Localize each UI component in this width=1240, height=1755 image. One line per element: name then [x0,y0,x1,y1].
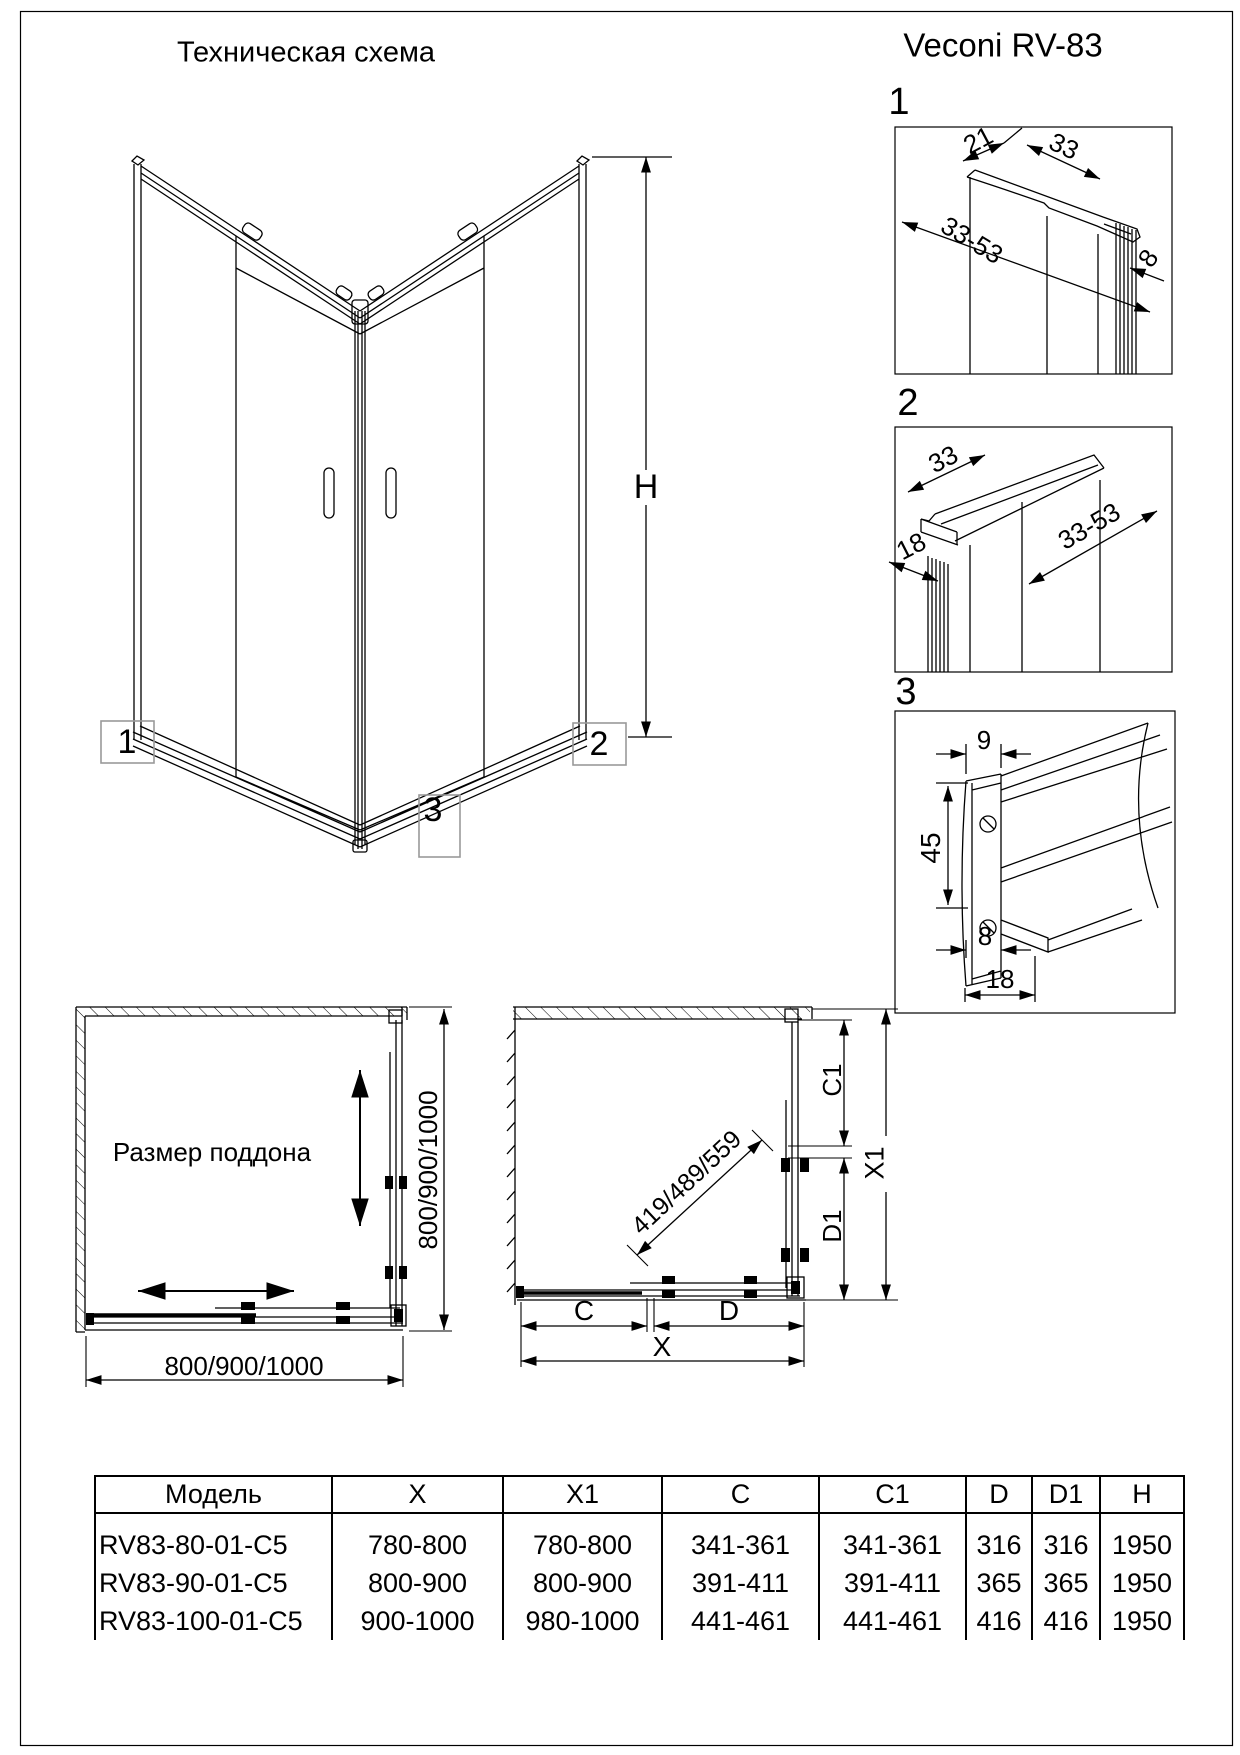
technical-scheme-page: Техническая схема Veconi RV-83 1 2 3 H 1… [0,0,1240,1755]
dim-label-c: C [574,1297,594,1325]
col-header-c: C [662,1476,819,1513]
detail-1-drawing [895,127,1172,374]
cell-c1: 391-411 [819,1564,966,1602]
callout-2-label: 2 [590,727,609,761]
col-header-model: Модель [95,1476,332,1513]
cell-c1: 441-461 [819,1602,966,1640]
detail-3-dim-45: 45 [917,832,945,863]
cell-c: 441-461 [662,1602,819,1640]
left-plan-bottom-dimension: 800/900/1000 [164,1353,323,1379]
cell-d: 416 [966,1602,1032,1640]
cell-x1: 780-800 [503,1513,662,1564]
cell-x: 780-800 [332,1513,503,1564]
dim-label-x: X [653,1333,672,1361]
cell-x: 900-1000 [332,1602,503,1640]
callout-1-label: 1 [118,725,137,759]
col-header-h: H [1100,1476,1184,1513]
cell-x1: 980-1000 [503,1602,662,1640]
detail-2-number: 2 [897,384,918,422]
height-dimension-label: H [634,470,659,504]
detail-3-number: 3 [895,673,916,711]
left-plan-side-dimension: 800/900/1000 [415,1090,441,1249]
col-header-c1: C1 [819,1476,966,1513]
detail-3-dim-18: 18 [986,966,1015,992]
brand-model-title: Veconi RV-83 [903,29,1102,62]
cell-model: RV83-80-01-C5 [95,1513,332,1564]
cell-x1: 800-900 [503,1564,662,1602]
table-row: RV83-100-01-C5 900-1000 980-1000 441-461… [95,1602,1184,1640]
table-row: RV83-80-01-C5 780-800 780-800 341-361 34… [95,1513,1184,1564]
dim-label-d1: D1 [819,1209,845,1242]
cell-h: 1950 [1100,1513,1184,1564]
cell-model: RV83-90-01-C5 [95,1564,332,1602]
cell-model: RV83-100-01-C5 [95,1602,332,1640]
cell-d1: 365 [1032,1564,1100,1602]
main-3d-drawing [101,156,672,857]
table-row: RV83-90-01-C5 800-900 800-900 391-411 39… [95,1564,1184,1602]
detail-1-number: 1 [888,83,909,121]
page-title: Техническая схема [177,39,435,68]
tray-size-label: Размер поддона [113,1139,311,1165]
cell-c: 391-411 [662,1564,819,1602]
col-header-x1: X1 [503,1476,662,1513]
dim-label-c1: C1 [819,1063,845,1096]
left-plan-drawing [76,1007,452,1387]
cell-d1: 316 [1032,1513,1100,1564]
col-header-x: X [332,1476,503,1513]
cell-c: 341-361 [662,1513,819,1564]
col-header-d: D [966,1476,1032,1513]
detail-3-dim-8: 8 [978,923,992,949]
spec-table: Модель X X1 C C1 D D1 H RV83-80-01-C5 78… [94,1475,1185,1640]
callout-3-label: 3 [424,793,443,827]
cell-h: 1950 [1100,1564,1184,1602]
cell-x: 800-900 [332,1564,503,1602]
dim-label-x1: X1 [862,1146,889,1179]
cell-c1: 341-361 [819,1513,966,1564]
col-header-d1: D1 [1032,1476,1100,1513]
cell-d: 316 [966,1513,1032,1564]
spec-table-header-row: Модель X X1 C C1 D D1 H [95,1476,1184,1513]
cell-h: 1950 [1100,1602,1184,1640]
dim-label-d: D [719,1297,739,1325]
cell-d: 365 [966,1564,1032,1602]
cell-d1: 416 [1032,1602,1100,1640]
detail-3-dim-9: 9 [977,727,991,753]
